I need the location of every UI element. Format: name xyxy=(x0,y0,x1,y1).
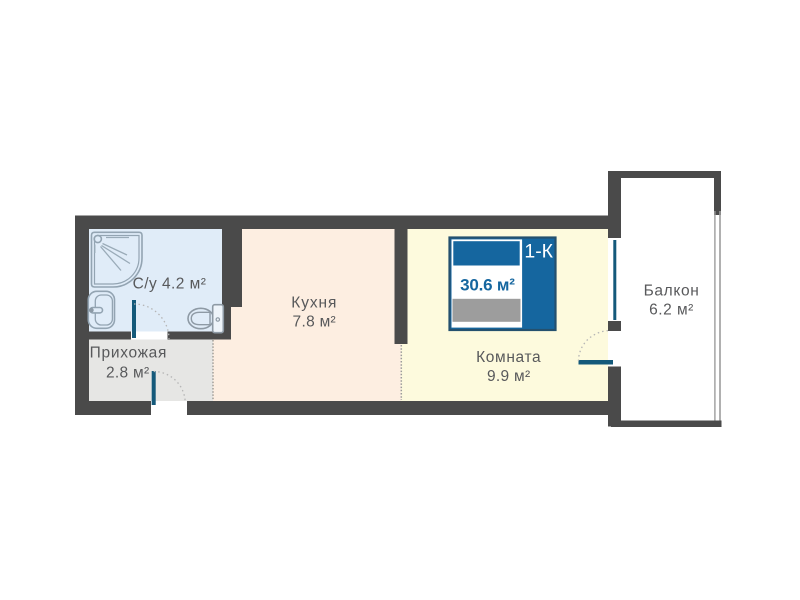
svg-text:Комната: Комната xyxy=(476,349,541,366)
svg-text:Кухня: Кухня xyxy=(291,295,337,312)
svg-text:2.8 м²: 2.8 м² xyxy=(106,365,149,382)
svg-text:7.8 м²: 7.8 м² xyxy=(293,314,336,331)
svg-text:С/у 4.2 м²: С/у 4.2 м² xyxy=(133,276,207,293)
svg-text:Балкон: Балкон xyxy=(644,283,700,300)
svg-text:1-К: 1-К xyxy=(524,241,553,263)
svg-text:6.2 м²: 6.2 м² xyxy=(649,302,694,319)
svg-text:30.6 м²: 30.6 м² xyxy=(460,276,515,295)
svg-text:Прихожая: Прихожая xyxy=(90,345,167,362)
svg-text:9.9 м²: 9.9 м² xyxy=(487,368,530,385)
